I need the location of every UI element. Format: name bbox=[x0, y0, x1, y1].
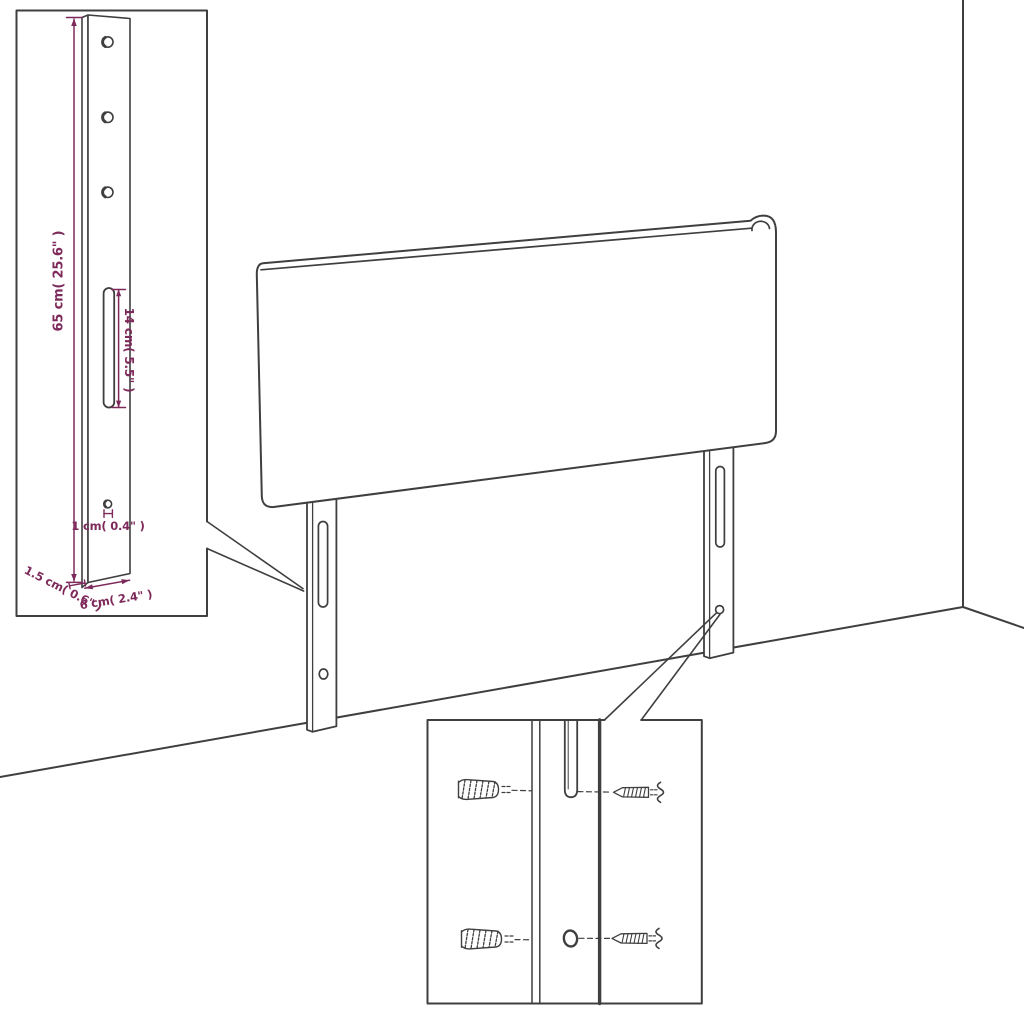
leg-hole-icon bbox=[563, 930, 578, 948]
floor-line-right bbox=[963, 607, 1024, 628]
headboard-left-leg bbox=[307, 493, 336, 732]
left-leg-slot-icon bbox=[318, 522, 327, 608]
floor-line-left bbox=[0, 607, 963, 777]
right-leg-slot-icon bbox=[716, 467, 725, 548]
wall-plug-icon bbox=[459, 780, 511, 800]
headboard-mounting-diagram: 65 cm( 25.6" ) 14 cm( 5.5" ) 1 cm( 0.4" … bbox=[0, 0, 1024, 1024]
leg-slot-icon bbox=[565, 720, 577, 797]
dim-height-label: 65 cm( 25.6" ) bbox=[52, 231, 67, 332]
dim-width-label: 6 cm( 2.4" ) bbox=[79, 587, 154, 612]
callout-wedge-bracket-inset bbox=[207, 522, 304, 592]
headboard-panel bbox=[257, 216, 776, 507]
headboard-outline bbox=[257, 216, 776, 507]
screw-icon bbox=[614, 782, 664, 802]
screw-icon bbox=[612, 928, 662, 948]
wall-plug-icon bbox=[462, 929, 514, 949]
bracket-front-face bbox=[88, 15, 130, 583]
left-leg-hole-icon bbox=[319, 669, 328, 679]
leg-closeup bbox=[532, 720, 600, 1004]
dim-hole-label: 1 cm( 0.4" ) bbox=[71, 519, 144, 533]
headboard-right-leg bbox=[704, 441, 733, 659]
bracket-side-face bbox=[82, 15, 88, 588]
hardware-detail-inset bbox=[428, 720, 702, 1004]
dashed-connector-lines bbox=[512, 790, 612, 940]
dim-height-65cm bbox=[67, 18, 83, 583]
dim-slot-label: 14 cm( 5.5" ) bbox=[122, 308, 136, 393]
